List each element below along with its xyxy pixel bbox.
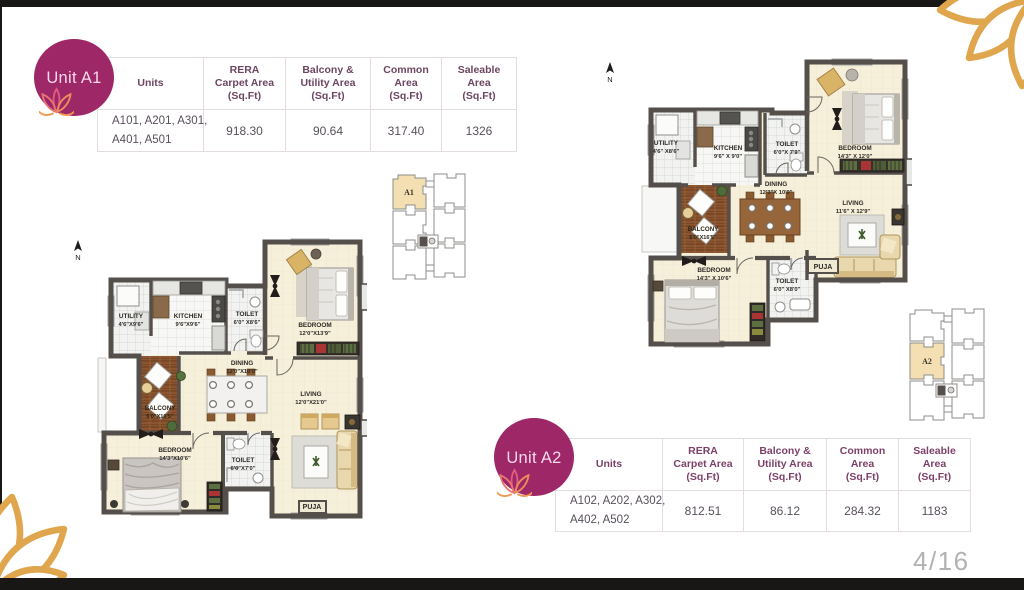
svg-text:TOILET: TOILET	[776, 278, 799, 285]
svg-text:LIVING: LIVING	[842, 200, 863, 207]
svg-text:PUJA: PUJA	[303, 504, 322, 511]
svg-text:12'0"X13'9": 12'0"X13'9"	[299, 331, 331, 337]
svg-text:DINING: DINING	[231, 360, 253, 367]
svg-text:BEDROOM: BEDROOM	[838, 145, 871, 152]
svg-text:KITCHEN: KITCHEN	[714, 145, 743, 152]
svg-text:BEDROOM: BEDROOM	[298, 322, 331, 329]
svg-text:12'3"X 10'0": 12'3"X 10'0"	[759, 190, 792, 196]
svg-text:TOILET: TOILET	[232, 457, 255, 464]
svg-text:9'6" X 9'0": 9'6" X 9'0"	[714, 154, 742, 160]
svg-text:12'0"X21'0": 12'0"X21'0"	[295, 400, 327, 406]
svg-text:14'3" X 10'6": 14'3" X 10'6"	[697, 276, 732, 282]
svg-text:N: N	[607, 75, 612, 84]
svg-text:5'0"X16'5": 5'0"X16'5"	[146, 414, 174, 420]
svg-text:14'3"X10'6": 14'3"X10'6"	[159, 456, 191, 462]
svg-text:BEDROOM: BEDROOM	[697, 267, 730, 274]
svg-text:9'6"X9'6": 9'6"X9'6"	[175, 322, 200, 328]
svg-text:TOILET: TOILET	[236, 311, 259, 318]
svg-text:DINING: DINING	[765, 181, 787, 188]
svg-text:14'3" X 12'0": 14'3" X 12'0"	[838, 154, 873, 160]
svg-text:6'0" X8'0": 6'0" X8'0"	[774, 287, 801, 293]
svg-text:KITCHEN: KITCHEN	[174, 313, 203, 320]
svg-text:A2: A2	[922, 357, 932, 366]
svg-text:N: N	[75, 253, 80, 262]
svg-text:LIVING: LIVING	[300, 391, 321, 398]
svg-text:BALCONY: BALCONY	[145, 405, 176, 412]
svg-text:UTILITY: UTILITY	[119, 313, 144, 320]
svg-text:BALCONY: BALCONY	[688, 226, 719, 233]
svg-text:6'0" X8'6": 6'0" X8'6"	[234, 320, 261, 326]
svg-text:BEDROOM: BEDROOM	[158, 447, 191, 454]
svg-text:TOILET: TOILET	[776, 141, 799, 148]
svg-text:PUJA: PUJA	[814, 264, 833, 271]
svg-text:12'0"X10'0": 12'0"X10'0"	[226, 369, 258, 375]
svg-text:11'6" X 12'9": 11'6" X 12'9"	[836, 209, 871, 215]
svg-text:4'6"X9'6": 4'6"X9'6"	[118, 322, 143, 328]
svg-text:UTILITY: UTILITY	[654, 140, 679, 147]
svg-text:6'0"X7'0": 6'0"X7'0"	[230, 466, 255, 472]
svg-text:6'0"X 7'9": 6'0"X 7'9"	[774, 150, 801, 156]
svg-text:5'0"X16'5": 5'0"X16'5"	[689, 235, 717, 241]
svg-text:A1: A1	[404, 188, 414, 197]
svg-text:4'6" X8'6": 4'6" X8'6"	[653, 149, 680, 155]
